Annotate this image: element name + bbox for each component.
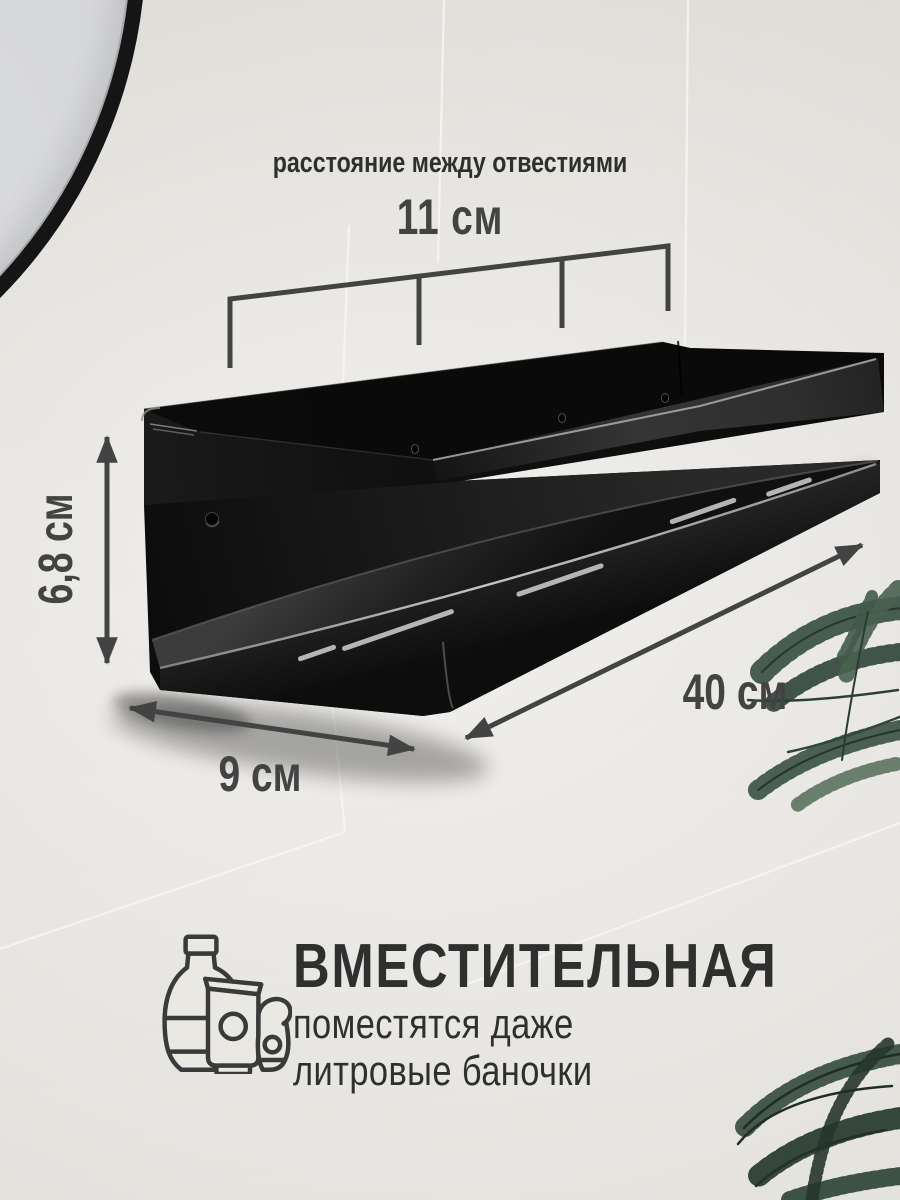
height-value: 6,8 см xyxy=(27,455,87,642)
cosmetics-bottles-icon xyxy=(152,934,292,1074)
holes-distance-caption: расстояние между отвестиями xyxy=(194,147,706,180)
holes-distance-value: 11 см xyxy=(294,188,606,246)
feature-line1: поместятся даже xyxy=(293,1000,777,1047)
product-image-shelf: расстояние между отвестиями 11 см 6,8 см… xyxy=(0,0,900,1200)
feature-line2: литровые баночки xyxy=(293,1047,777,1094)
depth-value: 9 см xyxy=(143,745,377,803)
keyhole-mount xyxy=(206,513,220,527)
width-value: 40 см xyxy=(618,663,852,721)
feature-title: ВМЕСТИТЕЛЬНАЯ xyxy=(293,934,777,1000)
feature-text-block: ВМЕСТИТЕЛЬНАЯ поместятся даже литровые б… xyxy=(293,934,884,1094)
